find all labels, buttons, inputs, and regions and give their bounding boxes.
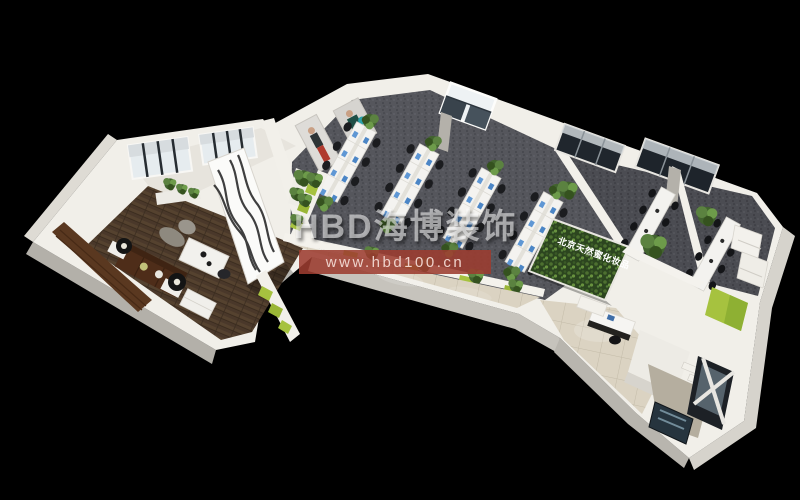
watermark-logo: HBD海博装饰 — [294, 210, 518, 244]
reception-chair — [609, 336, 621, 345]
exec-window-1 — [128, 137, 192, 179]
table-lamp-top — [121, 243, 127, 249]
watermark-banner: www.hbd100.cn — [299, 250, 491, 274]
office-chair — [218, 269, 231, 279]
rendering-canvas: 北京天然蜜化妆品 — [0, 0, 800, 500]
table-lamp-top — [174, 279, 180, 285]
watermark-url: www.hbd100.cn — [326, 255, 464, 270]
